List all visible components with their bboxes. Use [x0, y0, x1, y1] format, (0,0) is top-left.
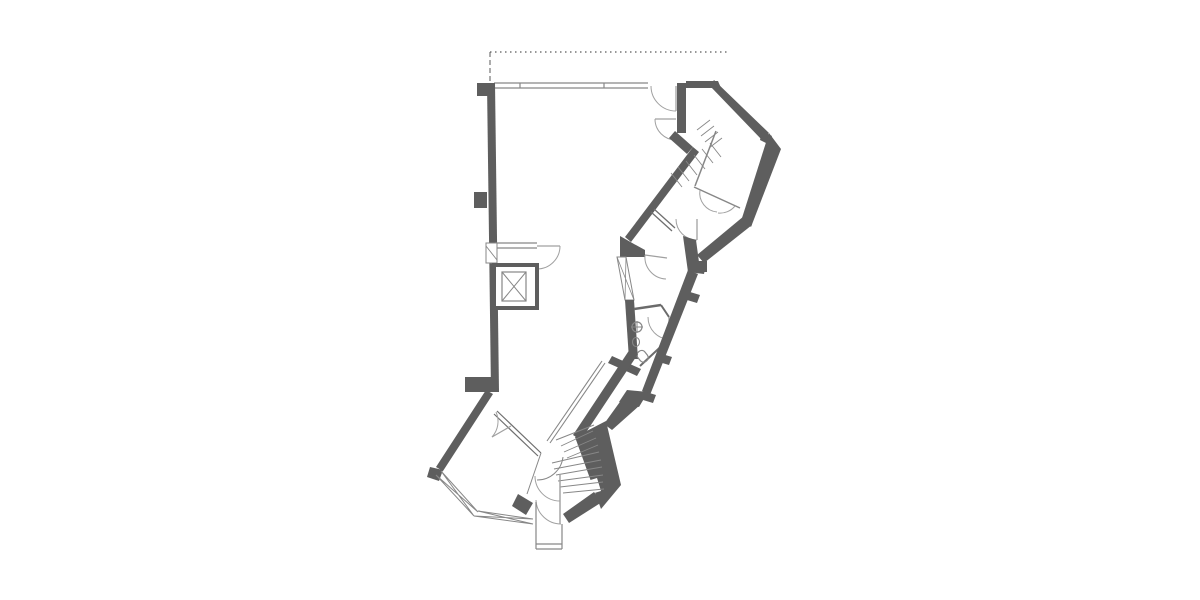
wing-room-bottom-line [694, 187, 740, 208]
entrance-door-swing-lower [536, 500, 561, 524]
room-a-door-swing [676, 219, 697, 240]
wing-bottom-edge-wall [697, 216, 752, 263]
room-partition-upper [651, 209, 675, 231]
entry-left-post [512, 494, 533, 515]
main-diagonal-wall [625, 147, 699, 242]
entry-side-wall [563, 492, 602, 523]
wc-top-wall [634, 305, 661, 309]
mid-window-band-hatch [617, 257, 634, 300]
floor-plan-page [0, 0, 1200, 600]
left-exterior-wall [487, 83, 499, 392]
bottom-room-door-leaf [492, 426, 511, 437]
wing-room-separator [695, 131, 716, 186]
bottom-room-partition-wall [494, 411, 541, 456]
window-band-a [436, 471, 478, 516]
entry-door-jamb-wall [677, 83, 686, 133]
stair-right-wall [575, 421, 621, 509]
left-wall-pilaster-top [477, 83, 495, 96]
stair-winder-curve [537, 457, 563, 480]
entrance-vestibule [536, 502, 562, 549]
bottom-left-diagonal-wall [436, 390, 493, 471]
floor-plan-svg [0, 0, 1200, 600]
room-b-door-swing [645, 255, 666, 279]
bottom-room-side-line [527, 453, 541, 494]
room-b-door-leaf [645, 255, 667, 258]
left-wall-pilaster-bottom [465, 377, 492, 392]
outer-wall-jog-nub [695, 261, 707, 272]
outer-wall-to-stair [604, 399, 640, 430]
wing-top-edge-wall [710, 80, 769, 140]
wing-right-edge-wall [742, 133, 781, 227]
outer-wall-lower-diagonal [642, 270, 698, 395]
wc-toilet [635, 349, 649, 364]
top-window-wall [494, 83, 648, 88]
left-wall-pilaster-middle [474, 192, 487, 208]
elevator-lobby-wall [495, 243, 537, 248]
main-entry-door-1-swing [651, 86, 676, 111]
wing-door-swing-right [718, 206, 735, 213]
wall-elbow [669, 131, 693, 154]
wc-corner-wall [661, 305, 669, 317]
elevator-lobby-door-swing [537, 246, 560, 269]
